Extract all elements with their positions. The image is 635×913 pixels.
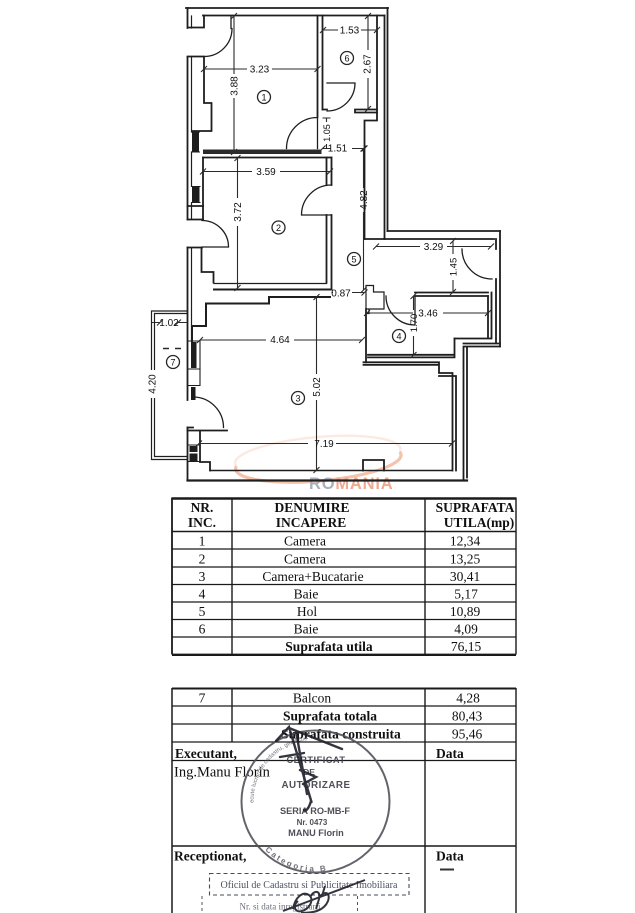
- svg-text:1: 1: [261, 93, 266, 103]
- svg-text:1.51: 1.51: [328, 144, 348, 155]
- svg-text:1.05: 1.05: [322, 124, 332, 142]
- svg-text:Suprafata totala: Suprafata totala: [283, 709, 377, 724]
- svg-text:4.20: 4.20: [148, 374, 159, 394]
- svg-text:10,89: 10,89: [450, 604, 481, 619]
- svg-text:0.87: 0.87: [331, 289, 351, 300]
- svg-text:6: 6: [344, 54, 349, 64]
- svg-text:30,41: 30,41: [450, 569, 480, 584]
- svg-text:DENUMIRE: DENUMIRE: [274, 500, 349, 515]
- svg-text:Categoria B: Categoria B: [264, 845, 329, 874]
- svg-text:3.23: 3.23: [250, 65, 270, 76]
- svg-text:Camera: Camera: [284, 552, 326, 567]
- svg-text:5: 5: [199, 604, 206, 619]
- svg-text:INC.: INC.: [188, 515, 216, 530]
- svg-text:Oficiul de Cadastru si Publici: Oficiul de Cadastru si Publicitate Imobi…: [221, 880, 398, 891]
- svg-text:2.67: 2.67: [363, 54, 374, 74]
- svg-text:UTILA(mp): UTILA(mp): [444, 515, 515, 530]
- svg-text:4: 4: [199, 587, 206, 602]
- svg-text:3.88: 3.88: [230, 76, 241, 96]
- svg-text:4,09: 4,09: [454, 622, 478, 637]
- svg-text:7: 7: [199, 691, 206, 706]
- svg-text:12,34: 12,34: [450, 534, 481, 549]
- svg-text:4: 4: [396, 332, 401, 342]
- svg-text:MANU Florin: MANU Florin: [288, 828, 344, 838]
- svg-text:Data: Data: [436, 849, 464, 864]
- svg-text:1.70: 1.70: [409, 314, 420, 333]
- svg-text:Hol: Hol: [297, 604, 317, 619]
- svg-text:7: 7: [170, 358, 175, 368]
- svg-text:3: 3: [295, 394, 300, 404]
- svg-text:13,25: 13,25: [450, 552, 481, 567]
- svg-text:Baie: Baie: [294, 587, 319, 602]
- svg-text:1: 1: [199, 534, 206, 549]
- svg-text:Camera: Camera: [284, 534, 326, 549]
- svg-text:80,43: 80,43: [452, 709, 483, 724]
- svg-text:5: 5: [351, 255, 356, 265]
- svg-text:Balcon: Balcon: [293, 691, 331, 706]
- svg-text:5.02: 5.02: [312, 377, 323, 397]
- svg-text:INCAPERE: INCAPERE: [276, 515, 347, 530]
- svg-text:1.45: 1.45: [449, 258, 460, 277]
- svg-text:3.59: 3.59: [256, 167, 276, 178]
- svg-text:SERIA RO-MB-F: SERIA RO-MB-F: [280, 806, 350, 816]
- svg-text:Receptionat,: Receptionat,: [174, 849, 246, 864]
- svg-text:4,28: 4,28: [456, 691, 480, 706]
- svg-text:2: 2: [199, 552, 206, 567]
- svg-text:AUTORIZARE: AUTORIZARE: [281, 780, 350, 791]
- svg-text:NR.: NR.: [191, 500, 214, 515]
- svg-text:ROMANIA: ROMANIA: [309, 475, 393, 493]
- svg-text:76,15: 76,15: [451, 639, 482, 654]
- svg-text:5,17: 5,17: [454, 587, 478, 602]
- svg-text:Camera+Bucatarie: Camera+Bucatarie: [262, 569, 363, 584]
- svg-text:SUPRAFATA: SUPRAFATA: [436, 500, 515, 515]
- svg-text:6: 6: [199, 622, 206, 637]
- svg-text:3.29: 3.29: [424, 242, 444, 253]
- svg-text:3: 3: [199, 569, 206, 584]
- svg-text:1.53: 1.53: [340, 26, 360, 37]
- svg-text:7.19: 7.19: [314, 439, 334, 450]
- svg-text:1.02: 1.02: [159, 318, 179, 329]
- svg-text:3.46: 3.46: [418, 309, 438, 320]
- svg-text:4.82: 4.82: [359, 190, 370, 210]
- svg-text:Nr. 0473: Nr. 0473: [297, 818, 328, 827]
- svg-text:Executant,: Executant,: [175, 746, 237, 761]
- svg-text:Baie: Baie: [294, 622, 319, 637]
- svg-text:95,46: 95,46: [452, 727, 483, 742]
- svg-text:2: 2: [276, 223, 281, 233]
- svg-text:Data: Data: [436, 746, 464, 761]
- svg-text:CERTIFICAT: CERTIFICAT: [287, 755, 346, 765]
- svg-text:4.64: 4.64: [270, 335, 290, 346]
- svg-text:Suprafata utila: Suprafata utila: [285, 639, 373, 654]
- svg-text:3.72: 3.72: [233, 202, 244, 222]
